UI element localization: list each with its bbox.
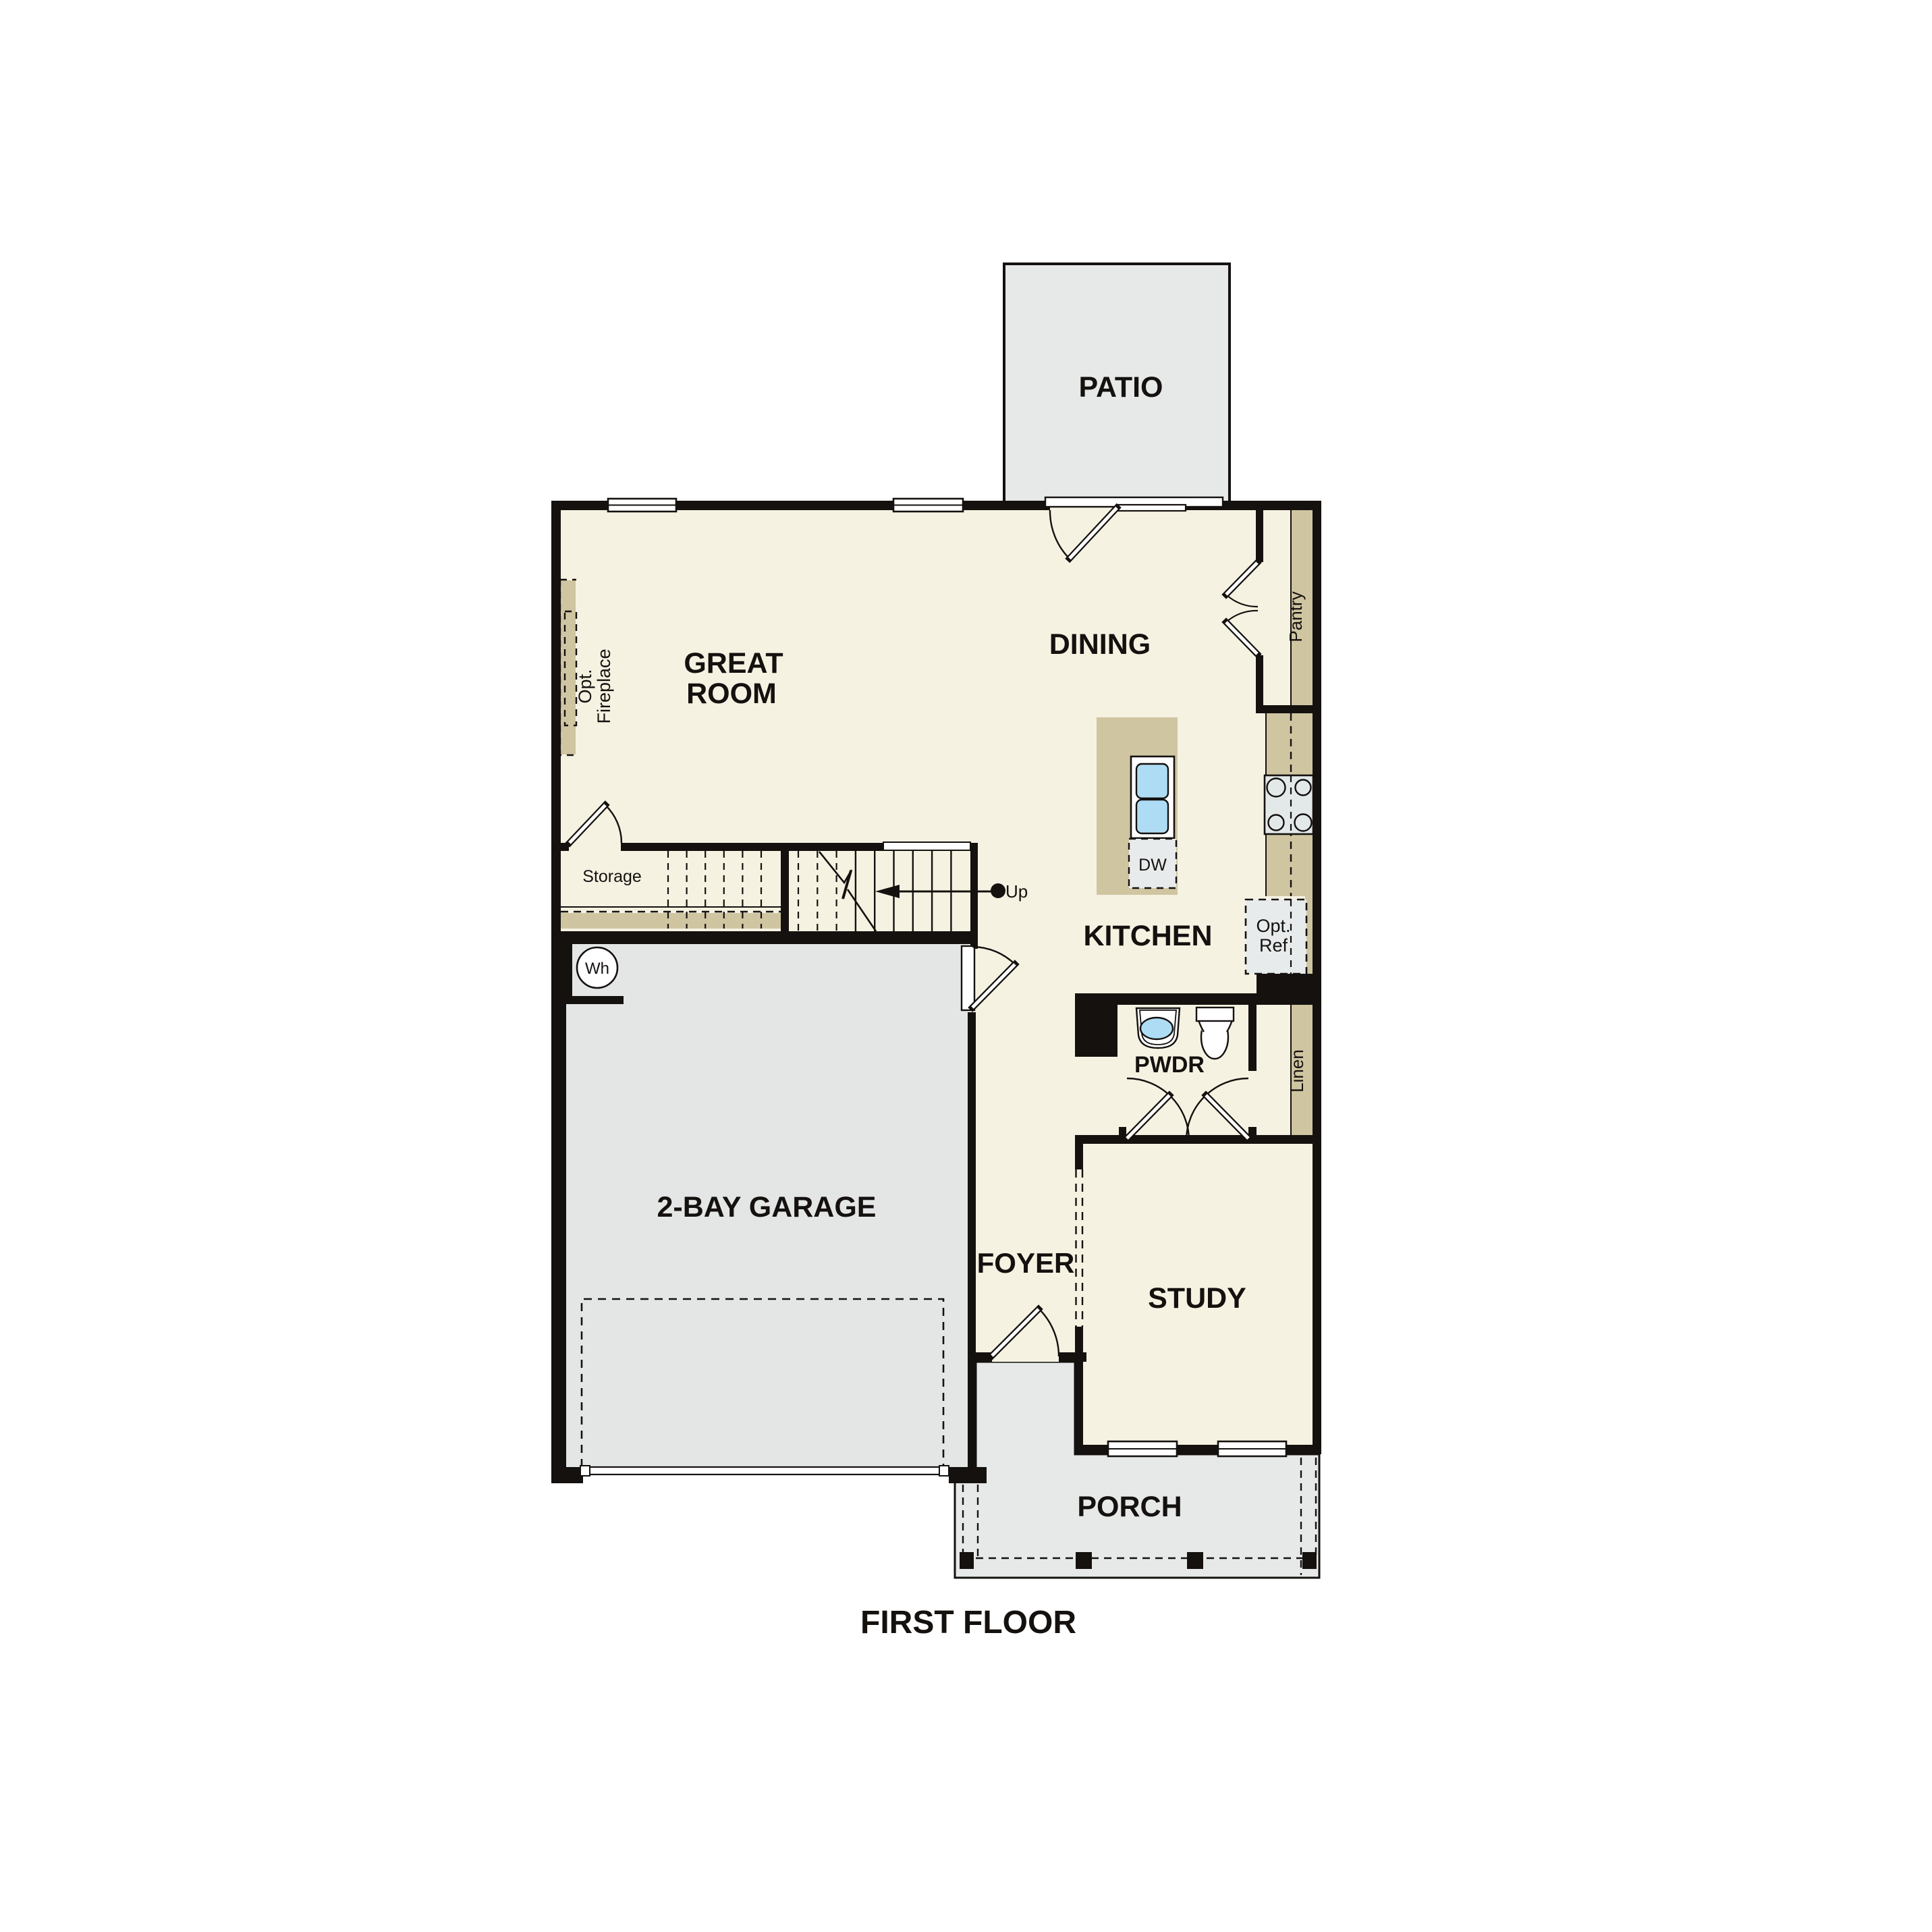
svg-text:DINING: DINING <box>1049 628 1151 661</box>
svg-text:Linen: Linen <box>1287 1049 1307 1093</box>
svg-text:FIRST FLOOR: FIRST FLOOR <box>860 1605 1076 1640</box>
svg-text:Opt.: Opt. <box>1256 916 1290 936</box>
svg-text:Wh: Wh <box>585 960 609 978</box>
svg-text:GREAT: GREAT <box>684 647 783 680</box>
svg-text:DW: DW <box>1138 856 1167 875</box>
svg-text:Opt.: Opt. <box>575 669 595 703</box>
svg-text:KITCHEN: KITCHEN <box>1083 920 1212 952</box>
svg-text:PATIO: PATIO <box>1078 371 1163 404</box>
svg-text:Pantry: Pantry <box>1286 591 1306 642</box>
svg-text:PWDR: PWDR <box>1134 1052 1205 1078</box>
svg-text:Up: Up <box>1005 881 1028 902</box>
svg-text:Ref: Ref <box>1259 935 1288 956</box>
svg-text:Storage: Storage <box>582 867 642 886</box>
svg-text:FOYER: FOYER <box>977 1247 1075 1279</box>
svg-text:ROOM: ROOM <box>686 678 777 710</box>
svg-text:Fireplace: Fireplace <box>594 648 614 723</box>
svg-text:STUDY: STUDY <box>1148 1282 1246 1315</box>
svg-text:PORCH: PORCH <box>1077 1491 1182 1523</box>
svg-text:2-BAY GARAGE: 2-BAY GARAGE <box>657 1191 877 1223</box>
